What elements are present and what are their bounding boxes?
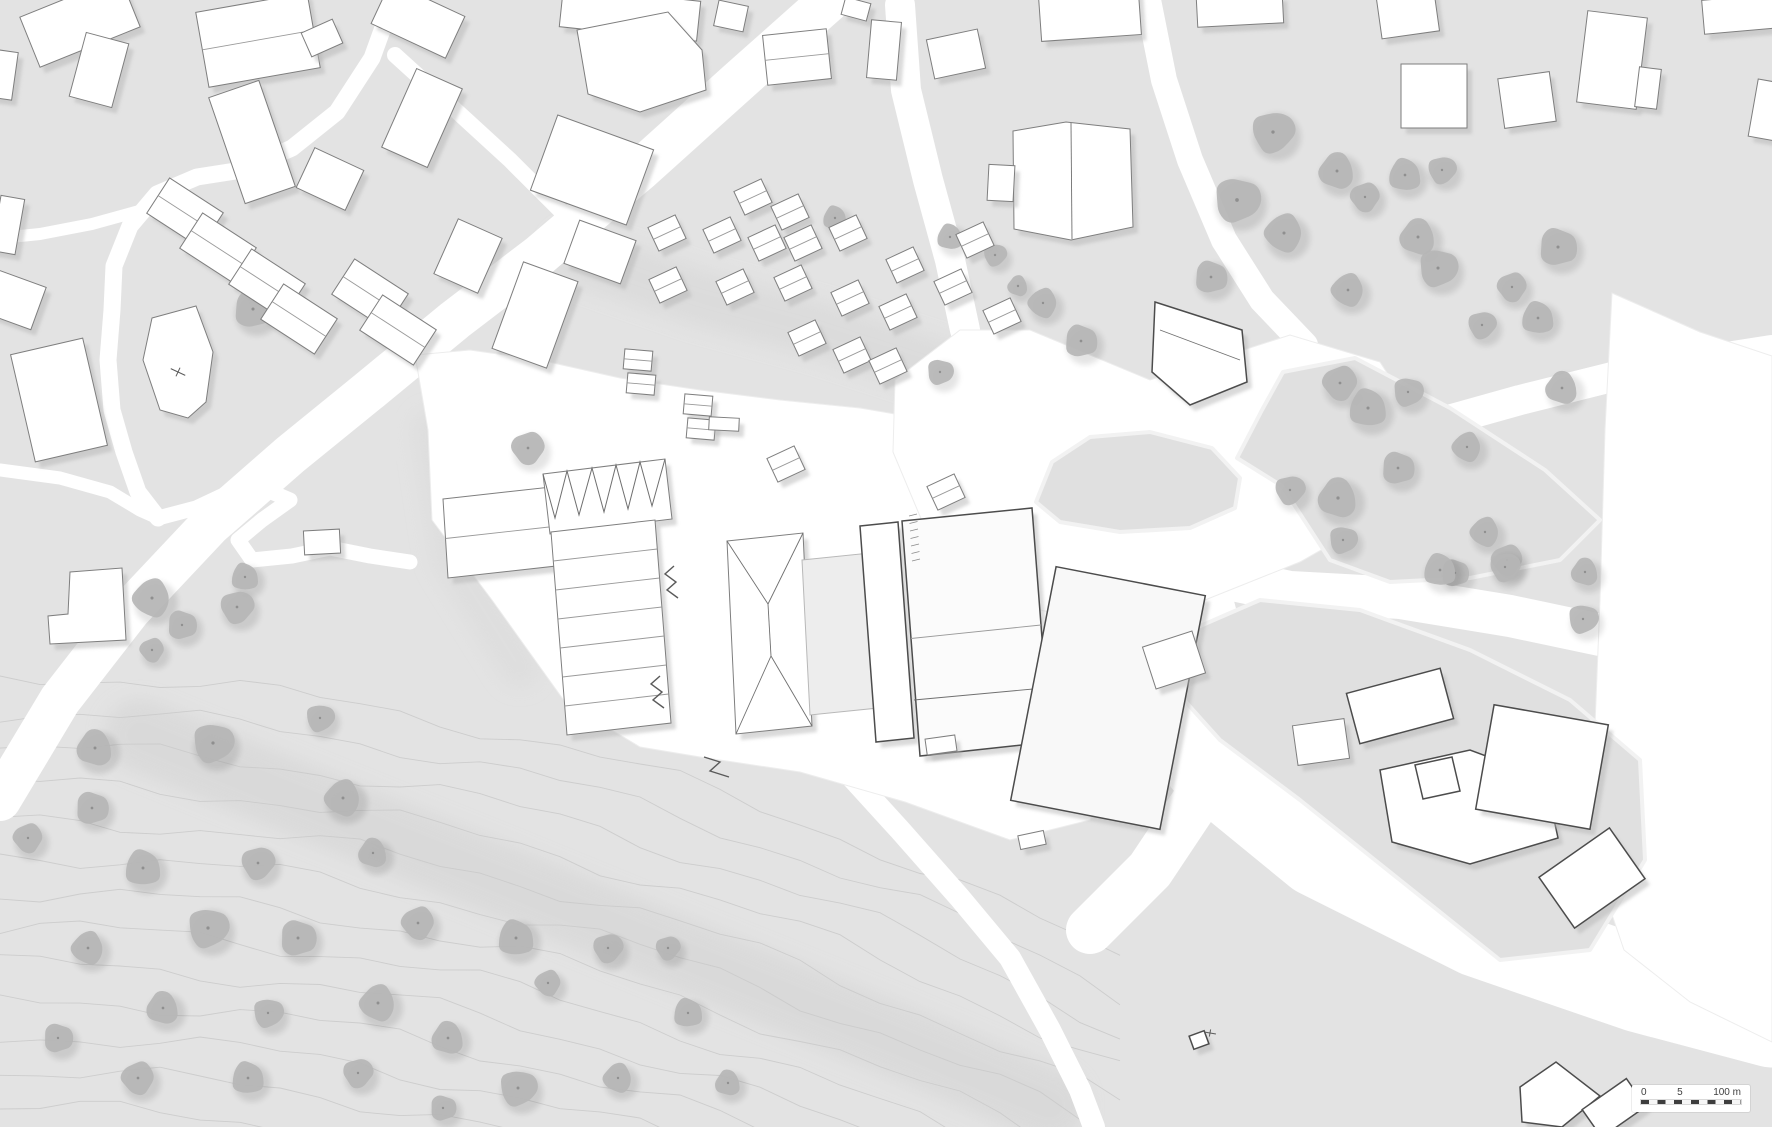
tree-trunk-dot: [27, 837, 29, 839]
site-plan-canvas: [0, 0, 1772, 1127]
scale-bar: 0 5 100 m: [1632, 1085, 1750, 1112]
tree-trunk-dot: [667, 947, 669, 949]
building-footprint: [1702, 0, 1772, 34]
tree-trunk-dot: [1364, 196, 1366, 198]
paved-area: [1590, 293, 1772, 1042]
tree-trunk-dot: [1017, 285, 1019, 287]
tree-trunk-dot: [206, 926, 209, 929]
tree-trunk-dot: [1484, 531, 1486, 533]
building-footprint: [867, 20, 902, 80]
tree-trunk-dot: [91, 807, 94, 810]
tree-trunk-dot: [1441, 169, 1443, 171]
tree-trunk-dot: [1366, 406, 1369, 409]
building-footprint: [1039, 0, 1142, 41]
building-footprint: [714, 0, 749, 32]
tree-trunk-dot: [1342, 539, 1344, 541]
tree-trunk-dot: [1407, 391, 1409, 393]
tree-trunk-dot: [236, 606, 239, 609]
tree-trunk-dot: [1584, 571, 1586, 573]
tree-trunk-dot: [211, 741, 214, 744]
building-footprint: [1635, 67, 1662, 109]
tree-trunk-dot: [142, 867, 145, 870]
tree-trunk-dot: [442, 1107, 444, 1109]
tree-trunk-dot: [87, 947, 90, 950]
tree-trunk-dot: [1282, 231, 1285, 234]
tree-trunk-dot: [1439, 569, 1442, 572]
tree-trunk-dot: [247, 1077, 250, 1080]
scale-bar-labels: 0 5 100 m: [1632, 1085, 1750, 1098]
tree-trunk-dot: [607, 947, 609, 949]
tree-trunk-dot: [150, 596, 153, 599]
tree-trunk-dot: [994, 254, 996, 256]
tree-trunk-dot: [939, 371, 941, 373]
tree-trunk-dot: [267, 1012, 269, 1014]
tree-trunk-dot: [517, 1087, 520, 1090]
tree-trunk-dot: [1504, 566, 1506, 568]
tree-trunk-dot: [527, 447, 530, 450]
tree-trunk-dot: [357, 1072, 359, 1074]
tree-trunk-dot: [834, 217, 836, 219]
tree-trunk-dot: [1561, 387, 1564, 390]
tree-trunk-dot: [251, 307, 254, 310]
tree-trunk-dot: [447, 1037, 450, 1040]
tree-trunk-dot: [1336, 170, 1339, 173]
tree-trunk-dot: [1042, 302, 1044, 304]
tree-trunk-dot: [1289, 489, 1291, 491]
tree-trunk-dot: [319, 717, 321, 719]
building-footprint: [1013, 122, 1133, 240]
tree-trunk-dot: [342, 797, 345, 800]
tree-trunk-dot: [1466, 446, 1468, 448]
tree-trunk-dot: [515, 937, 518, 940]
site-plan-page: 0 5 100 m: [0, 0, 1772, 1127]
building-footprint: [925, 735, 957, 755]
building-footprint: [303, 529, 340, 555]
building-footprint: [1498, 72, 1556, 129]
building-footprint: [709, 417, 740, 432]
tree-trunk-dot: [162, 1007, 165, 1010]
tree-trunk-dot: [727, 1082, 729, 1084]
tree-trunk-dot: [1556, 245, 1559, 248]
tree-trunk-dot: [181, 624, 183, 626]
scale-label-zero: 0: [1641, 1088, 1647, 1098]
tree-trunk-dot: [94, 747, 97, 750]
tree-trunk-dot: [1417, 236, 1420, 239]
tree-trunk-dot: [1397, 467, 1400, 470]
tree-trunk-dot: [617, 1077, 619, 1079]
tree-trunk-dot: [377, 1002, 380, 1005]
tree-trunk-dot: [297, 937, 300, 940]
tree-trunk-dot: [372, 852, 374, 854]
building-footprint: [1476, 705, 1609, 830]
tree-trunk-dot: [687, 1012, 689, 1014]
scale-label-max: 100 m: [1713, 1088, 1741, 1098]
tree-trunk-dot: [1235, 198, 1239, 202]
tree-trunk-dot: [1336, 496, 1339, 499]
tree-trunk-dot: [1080, 340, 1083, 343]
scale-label-mid: 5: [1677, 1088, 1683, 1098]
scale-bar-ticks: [1641, 1100, 1741, 1104]
tree-trunk-dot: [151, 649, 153, 651]
building-footprint: [1196, 0, 1283, 27]
tree-trunk-dot: [1404, 174, 1407, 177]
tree-trunk-dot: [1511, 286, 1513, 288]
building-footprint: [1401, 64, 1467, 128]
building-footprint: [987, 164, 1015, 201]
tree-trunk-dot: [949, 236, 951, 238]
tree-trunk-dot: [137, 1077, 140, 1080]
tree-trunk-dot: [1347, 289, 1350, 292]
tree-trunk-dot: [1537, 317, 1540, 320]
tree-trunk-dot: [417, 922, 420, 925]
tree-trunk-dot: [57, 1037, 59, 1039]
tree-trunk-dot: [1339, 382, 1342, 385]
tree-trunk-dot: [1436, 266, 1439, 269]
tree-trunk-dot: [1582, 618, 1584, 620]
tree-trunk-dot: [1271, 130, 1274, 133]
tree-trunk-dot: [257, 862, 260, 865]
building-footprint: [1292, 719, 1349, 766]
tree-trunk-dot: [1481, 324, 1483, 326]
building-footprint: [551, 520, 671, 735]
tree-trunk-dot: [1210, 276, 1213, 279]
tree-trunk-dot: [547, 982, 549, 984]
building-footprint: [1415, 757, 1460, 799]
tree-trunk-dot: [244, 576, 246, 578]
